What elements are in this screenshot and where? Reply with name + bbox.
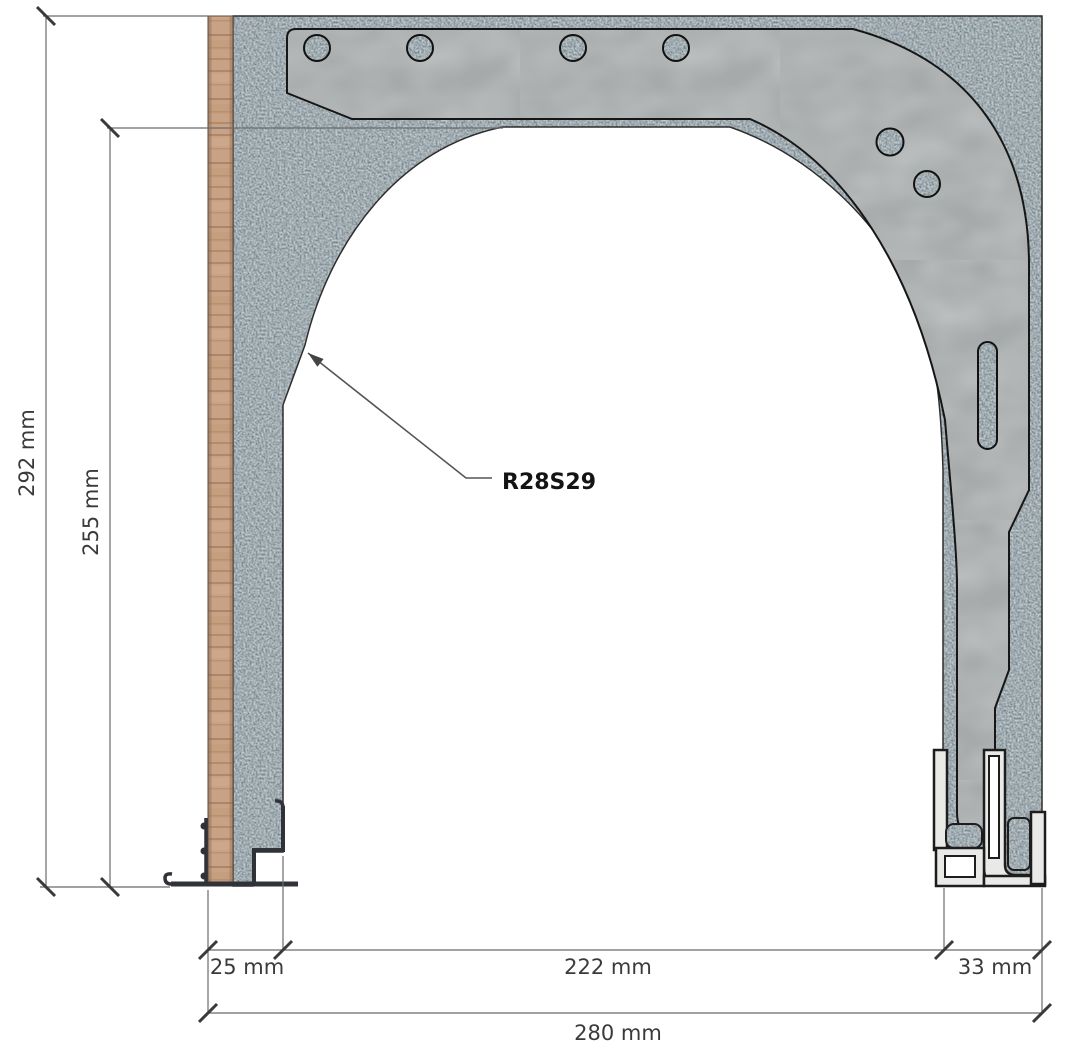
bracket-hole-4 <box>663 35 689 61</box>
bracket-hole-1 <box>304 35 330 61</box>
bracket-slot <box>978 342 997 449</box>
bracket-hole-3 <box>560 35 586 61</box>
dim-label-opening-width: 222 mm <box>564 955 652 979</box>
leader-line <box>308 353 492 478</box>
drawing-svg <box>0 0 1066 1048</box>
part-label: R28S29 <box>502 470 596 495</box>
rail-channel-slot <box>989 756 999 858</box>
dim-label-inner-height: 255 mm <box>79 468 103 556</box>
rail-right-leg <box>1031 812 1045 884</box>
track-screw-2 <box>201 848 208 855</box>
dim-label-overall-width: 280 mm <box>574 1021 662 1045</box>
bracket-bend-hole-1 <box>877 129 904 156</box>
plywood-board <box>208 16 233 886</box>
track-screw-1 <box>201 823 208 830</box>
rail-speckle-insert <box>1008 818 1030 870</box>
plywood-edge-right <box>230 16 233 886</box>
bracket-bend-hole-2 <box>914 171 940 197</box>
plywood-face <box>208 16 233 886</box>
plywood-edge-left <box>209 16 212 886</box>
track-base-curl <box>165 874 172 884</box>
leader-arrowhead <box>308 353 324 367</box>
dim-label-overall-height: 292 mm <box>15 409 39 497</box>
leader-callout <box>308 353 492 478</box>
bracket-hole-2 <box>407 35 433 61</box>
dim-label-guide-rail-width: 33 mm <box>958 955 1032 979</box>
track-screw-3 <box>201 873 208 880</box>
technical-drawing-canvas: 292 mm 255 mm 25 mm 222 mm 33 mm 280 mm … <box>0 0 1066 1048</box>
rail-bottom-box-inner <box>945 856 975 877</box>
dim-label-wall-thickness: 25 mm <box>210 955 284 979</box>
rail-speckle-under-arm <box>946 824 982 848</box>
